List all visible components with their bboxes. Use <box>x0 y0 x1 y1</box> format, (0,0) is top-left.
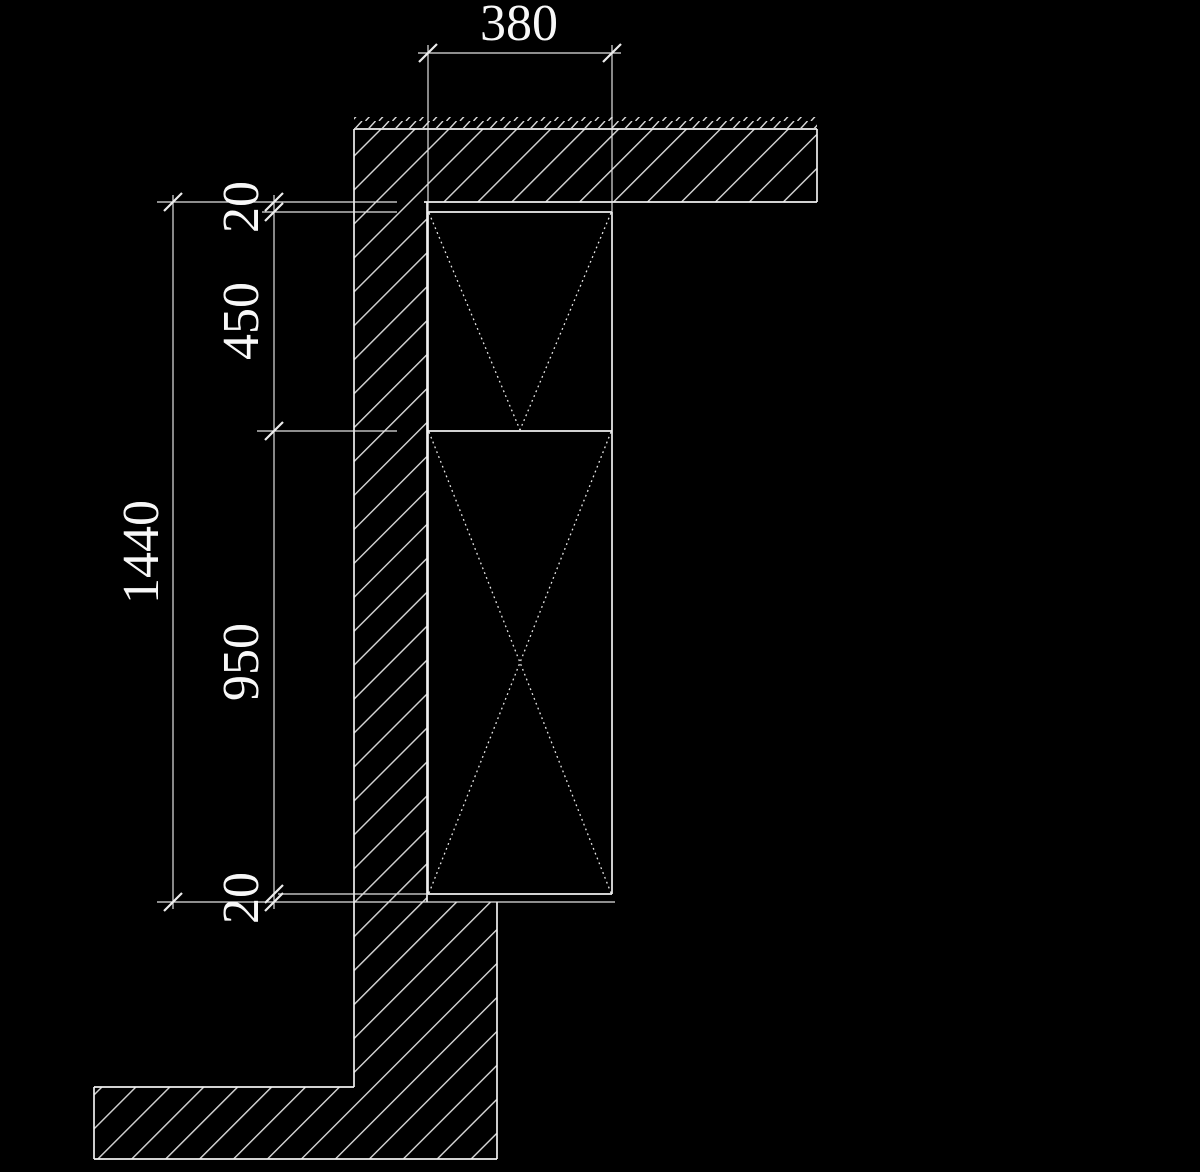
dim-text-20-top: 20 <box>213 181 270 233</box>
concrete-hatch-fill <box>94 129 817 1159</box>
dim-text-450: 450 <box>213 282 270 360</box>
dim-text-380: 380 <box>480 0 558 52</box>
upper-panel-v-brace-right <box>520 213 611 430</box>
concrete-section <box>94 117 817 1159</box>
cad-drawing-canvas: 380 20 450 1440 950 20 <box>0 0 1200 1172</box>
upper-panel-v-brace-left <box>429 213 520 430</box>
window-frame <box>428 212 612 894</box>
dim-text-1440: 1440 <box>113 500 170 604</box>
dim-text-20-bottom: 20 <box>213 872 270 924</box>
dim-text-950: 950 <box>213 623 270 701</box>
top-slab-surface-ticks <box>354 117 817 128</box>
section-drawing: 380 20 450 1440 950 20 <box>0 0 1200 1172</box>
